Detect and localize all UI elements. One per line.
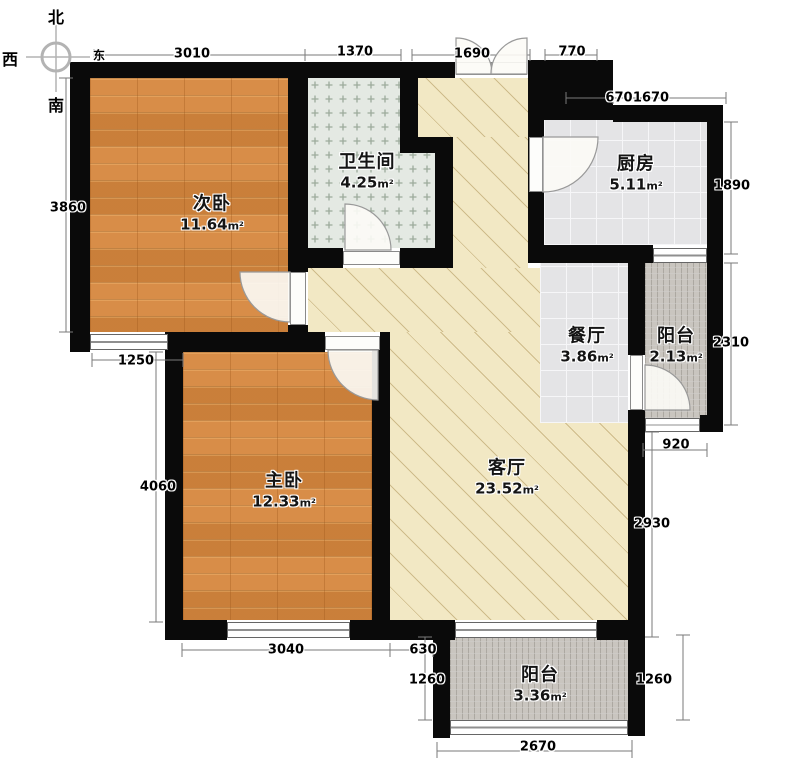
door-balcony-right bbox=[630, 355, 643, 410]
wall-segment bbox=[628, 432, 645, 640]
floor-entry-hall bbox=[418, 78, 528, 137]
room-label-bathroom: 卫生间 4.25m² bbox=[339, 151, 396, 194]
room-name: 卫生间 bbox=[339, 151, 396, 174]
floor-plan: 北 西 南 东 次卧 11.64m² 卫生间 4.25m² 厨房 5.11m² … bbox=[0, 0, 800, 766]
dim-left-1250: 1250 bbox=[118, 354, 154, 369]
wall-segment bbox=[400, 248, 453, 268]
room-label-balcony-bottom: 阳台 3.36m² bbox=[513, 664, 566, 707]
room-label-secondary-bedroom: 次卧 11.64m² bbox=[180, 193, 244, 236]
wall-segment bbox=[288, 248, 343, 268]
wall-segment bbox=[400, 137, 453, 153]
door-bathroom bbox=[343, 251, 400, 265]
wall-segment bbox=[390, 620, 455, 640]
wall-segment bbox=[418, 62, 455, 78]
wall-segment bbox=[380, 332, 390, 352]
wall-segment bbox=[628, 410, 645, 432]
dim-inner-1670: 1670 bbox=[633, 91, 669, 106]
wall-segment bbox=[528, 245, 653, 263]
wall-segment bbox=[288, 62, 308, 272]
room-area-unit: m² bbox=[646, 180, 662, 193]
dim-top-3010: 3010 bbox=[174, 47, 210, 62]
window-living-balcony-slider bbox=[455, 622, 597, 638]
room-area: 11.64 bbox=[180, 216, 227, 234]
room-area-unit: m² bbox=[550, 691, 566, 704]
room-label-kitchen: 厨房 5.11m² bbox=[609, 153, 662, 196]
dim-top-1370: 1370 bbox=[337, 45, 373, 60]
room-area-unit: m² bbox=[377, 178, 393, 191]
compass-south-label: 南 bbox=[48, 92, 64, 116]
room-name: 阳台 bbox=[649, 325, 702, 348]
dim-left-4060: 4060 bbox=[140, 480, 176, 495]
wall-segment bbox=[165, 620, 227, 640]
compass-east-label: 东 bbox=[93, 47, 105, 64]
dim-left-1260: 1260 bbox=[409, 673, 445, 688]
wall-segment bbox=[528, 60, 613, 120]
door-master-bedroom bbox=[325, 336, 380, 350]
window-master-bedroom bbox=[227, 622, 350, 638]
room-area: 3.36 bbox=[513, 687, 550, 705]
dim-right-920: 920 bbox=[662, 438, 689, 453]
dim-top-770: 770 bbox=[558, 45, 585, 60]
entrance-door-leaves bbox=[456, 62, 527, 75]
room-area: 23.52 bbox=[475, 480, 522, 498]
room-name: 阳台 bbox=[513, 664, 566, 687]
room-name: 客厅 bbox=[475, 457, 539, 480]
dim-right-2930: 2930 bbox=[634, 517, 670, 532]
dim-inner-670: 670 bbox=[605, 91, 632, 106]
room-name: 主卧 bbox=[252, 470, 316, 493]
dim-right-1260: 1260 bbox=[636, 673, 672, 688]
room-area: 3.86 bbox=[560, 348, 597, 366]
room-area-unit: m² bbox=[523, 484, 539, 497]
compass-west-label: 西 bbox=[2, 46, 18, 70]
window-balcony-right-bottom bbox=[645, 418, 700, 432]
dim-right-2310: 2310 bbox=[713, 336, 749, 351]
room-area-unit: m² bbox=[686, 352, 702, 365]
wall-segment bbox=[288, 325, 308, 352]
wall-segment bbox=[433, 717, 450, 738]
wall-segment bbox=[628, 263, 645, 355]
wall-segment bbox=[435, 153, 453, 250]
window-secondary-bedroom bbox=[90, 334, 168, 350]
room-label-master-bedroom: 主卧 12.33m² bbox=[252, 470, 316, 513]
room-name: 餐厅 bbox=[560, 325, 613, 348]
wall-segment bbox=[70, 62, 418, 78]
dim-top-1690: 1690 bbox=[454, 47, 490, 62]
dim-bottom-2670: 2670 bbox=[520, 740, 556, 755]
dim-bottom-630: 630 bbox=[409, 643, 436, 658]
room-name: 厨房 bbox=[609, 153, 662, 176]
dim-left-3860: 3860 bbox=[50, 201, 86, 216]
room-label-dining: 餐厅 3.86m² bbox=[560, 325, 613, 368]
wall-segment bbox=[700, 415, 723, 432]
dim-bottom-3040: 3040 bbox=[268, 643, 304, 658]
room-label-balcony-right: 阳台 2.13m² bbox=[649, 325, 702, 368]
room-area: 12.33 bbox=[252, 493, 299, 511]
floor-entry-hall-lower bbox=[453, 137, 528, 268]
room-area-unit: m² bbox=[597, 352, 613, 365]
window-kitchen-balcony bbox=[653, 248, 707, 263]
door-secondary-bedroom bbox=[290, 272, 306, 325]
wall-segment bbox=[628, 715, 645, 736]
wall-segment bbox=[350, 620, 390, 640]
room-area: 4.25 bbox=[340, 174, 377, 192]
room-area: 2.13 bbox=[649, 348, 686, 366]
room-area: 5.11 bbox=[609, 176, 646, 194]
dim-right-1890: 1890 bbox=[714, 179, 750, 194]
compass-north-label: 北 bbox=[48, 4, 64, 28]
window-balcony-bottom bbox=[450, 720, 628, 735]
wall-segment bbox=[400, 62, 418, 137]
wall-segment bbox=[372, 350, 390, 640]
door-kitchen bbox=[529, 137, 543, 192]
room-label-living-room: 客厅 23.52m² bbox=[475, 457, 539, 500]
wall-segment bbox=[70, 332, 90, 352]
room-area-unit: m² bbox=[228, 220, 244, 233]
room-area-unit: m² bbox=[300, 497, 316, 510]
wall-segment bbox=[597, 620, 643, 640]
room-name: 次卧 bbox=[180, 193, 244, 216]
